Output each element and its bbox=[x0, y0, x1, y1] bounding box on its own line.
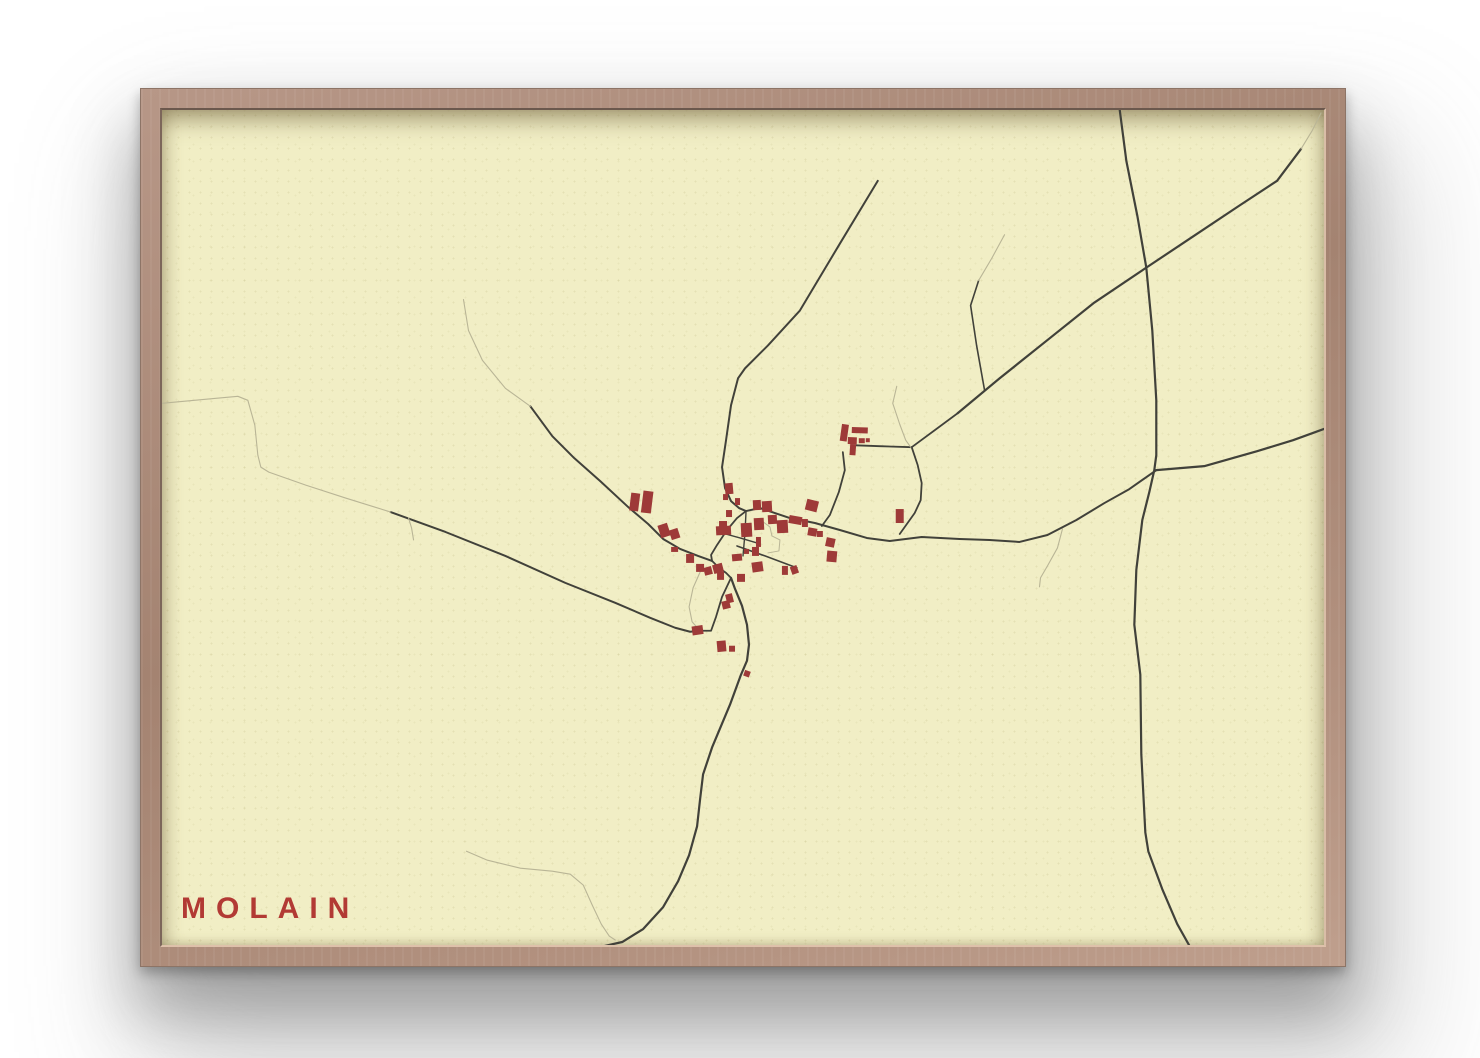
building-footprint bbox=[725, 483, 734, 495]
road-dark bbox=[1119, 110, 1191, 945]
building-footprint bbox=[825, 537, 836, 548]
building-footprint bbox=[692, 625, 704, 635]
building-footprint bbox=[788, 515, 802, 525]
building-footprint bbox=[805, 499, 819, 513]
building-footprint bbox=[741, 523, 753, 538]
building-footprint bbox=[703, 566, 713, 576]
building-footprint bbox=[840, 424, 849, 442]
building-footprint bbox=[751, 561, 763, 572]
road-dark bbox=[588, 578, 749, 945]
building-footprint bbox=[782, 566, 788, 575]
road-dark bbox=[822, 452, 845, 526]
building-footprint bbox=[848, 437, 857, 444]
building-footprint bbox=[768, 515, 777, 524]
road-light bbox=[893, 386, 911, 447]
road-dark bbox=[958, 149, 1301, 413]
building-footprint bbox=[669, 528, 681, 540]
building-footprint bbox=[754, 518, 765, 530]
building-footprint bbox=[777, 520, 789, 534]
map-graphic bbox=[162, 110, 1324, 945]
road-dark bbox=[722, 181, 878, 511]
building-footprint bbox=[726, 510, 732, 517]
building-footprint bbox=[671, 547, 678, 552]
road-dark bbox=[530, 406, 712, 561]
road-light bbox=[162, 396, 391, 512]
road-light bbox=[1039, 529, 1062, 587]
building-footprint bbox=[744, 549, 749, 554]
frame-inner-bevel: MOLAIN bbox=[160, 108, 1326, 947]
wood-frame: MOLAIN bbox=[140, 88, 1346, 967]
building-footprint bbox=[696, 564, 704, 572]
building-footprint bbox=[717, 640, 727, 652]
building-footprint bbox=[732, 554, 743, 562]
building-footprint bbox=[762, 501, 773, 512]
building-footprint bbox=[826, 551, 837, 563]
building-footprint bbox=[756, 537, 761, 547]
building-footprint bbox=[852, 427, 868, 434]
building-footprint bbox=[641, 491, 654, 514]
road-light bbox=[466, 851, 615, 940]
building-footprint bbox=[716, 526, 731, 536]
road-dark bbox=[711, 511, 746, 561]
road-light bbox=[979, 235, 1005, 281]
road-dark bbox=[912, 413, 958, 447]
building-footprint bbox=[753, 500, 761, 510]
map-paper: MOLAIN bbox=[162, 110, 1324, 945]
building-footprint bbox=[686, 554, 694, 563]
building-footprint bbox=[752, 547, 759, 556]
road-light bbox=[409, 518, 414, 540]
poster-photo: MOLAIN bbox=[0, 0, 1480, 1058]
road-dark bbox=[852, 445, 912, 447]
building-footprint bbox=[849, 444, 856, 455]
building-footprint bbox=[802, 519, 808, 527]
building-footprint bbox=[737, 574, 745, 582]
road-light bbox=[1301, 113, 1321, 149]
building-footprint bbox=[859, 438, 865, 443]
building-footprint bbox=[817, 531, 823, 537]
road-dark bbox=[971, 281, 985, 391]
poster-title: MOLAIN bbox=[181, 892, 359, 926]
road-dark bbox=[1156, 428, 1324, 470]
building-footprint bbox=[717, 572, 724, 580]
building-footprint bbox=[807, 527, 817, 536]
building-footprint bbox=[735, 498, 740, 505]
road-light bbox=[463, 300, 530, 407]
building-footprint bbox=[729, 646, 735, 652]
building-footprint bbox=[723, 494, 728, 500]
building-footprint bbox=[896, 509, 904, 523]
building-footprint bbox=[629, 493, 640, 512]
road-light bbox=[689, 570, 701, 630]
building-footprint bbox=[866, 438, 870, 442]
building-footprint bbox=[743, 670, 751, 678]
